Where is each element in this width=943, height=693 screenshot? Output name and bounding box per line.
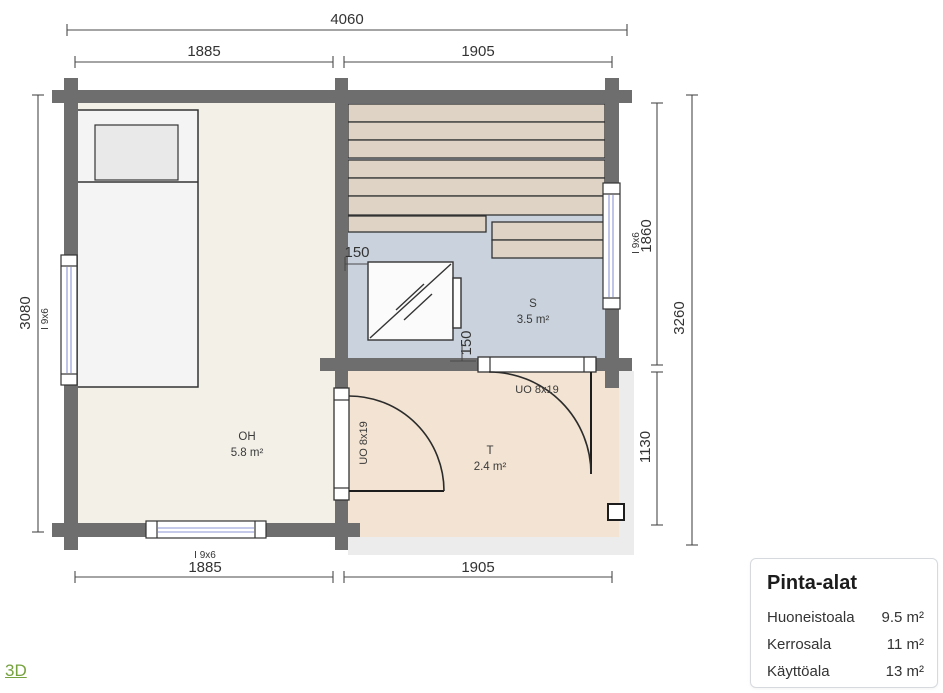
room-s-name: S: [529, 298, 537, 310]
dim-right-total: 3260: [671, 301, 688, 334]
room-oh-name: OH: [238, 431, 255, 443]
area-value: 11 m²: [887, 631, 924, 658]
area-label: Kerrosala: [767, 631, 831, 658]
area-label: Huoneistoala: [767, 604, 855, 631]
area-value: 13 m²: [886, 658, 924, 685]
dim-bottom-left: 1885: [188, 559, 221, 576]
dim-top-total: 4060: [330, 11, 363, 28]
window-left: [61, 255, 77, 385]
dim-bottom-right: 1905: [461, 559, 494, 576]
area-row: Huoneistoala 9.5 m²: [767, 604, 924, 631]
lower-bench-slat: [492, 240, 605, 258]
area-label: Käyttöala: [767, 658, 830, 685]
door-label-top: UO 8x19: [515, 384, 558, 396]
window-label-right: I 9x6: [631, 232, 642, 254]
stove-side-unit: [453, 278, 461, 328]
window-bottom: [146, 521, 266, 538]
floor-terrace: [348, 371, 619, 537]
area-value: 9.5 m²: [881, 604, 924, 631]
room-oh-area: 5.8 m²: [231, 447, 264, 459]
window-right: [603, 183, 620, 309]
bench-slat: [348, 196, 605, 215]
bench-slat: [348, 140, 605, 158]
bed: [77, 110, 198, 387]
bench-slat: [348, 160, 605, 178]
deck-strip-bottom: [348, 537, 634, 555]
bed-pillow: [95, 125, 178, 180]
lower-bench-slat: [492, 222, 605, 240]
view-3d-link[interactable]: 3D: [5, 661, 27, 681]
room-s-area: 3.5 m²: [517, 314, 550, 326]
bench-slat: [348, 104, 605, 122]
bench-slat: [348, 178, 605, 196]
stove-offset-bottom-value: 150: [458, 330, 475, 355]
room-t-area: 2.4 m²: [474, 461, 507, 473]
bench-slat: [348, 122, 605, 140]
area-row: Kerrosala 11 m²: [767, 631, 924, 658]
sauna-stove: [368, 262, 461, 340]
dim-left-height: 3080: [17, 296, 34, 329]
room-t-name: T: [486, 445, 493, 457]
deck-strip-right: [619, 371, 634, 555]
terrace-post: [608, 504, 624, 520]
dim-top-right: 1905: [461, 43, 494, 60]
door-label-left: UO 8x19: [358, 421, 370, 464]
dim-top-left: 1885: [187, 43, 220, 60]
dim-right-terrace: 1130: [637, 431, 654, 463]
window-label-left: I 9x6: [40, 308, 51, 330]
areas-panel: Pinta-alat Huoneistoala 9.5 m² Kerrosala…: [750, 558, 938, 688]
areas-panel-title: Pinta-alat: [767, 572, 924, 595]
bench-step: [348, 216, 486, 232]
stove-offset-left-value: 150: [344, 244, 369, 261]
area-row: Käyttöala 13 m²: [767, 658, 924, 685]
